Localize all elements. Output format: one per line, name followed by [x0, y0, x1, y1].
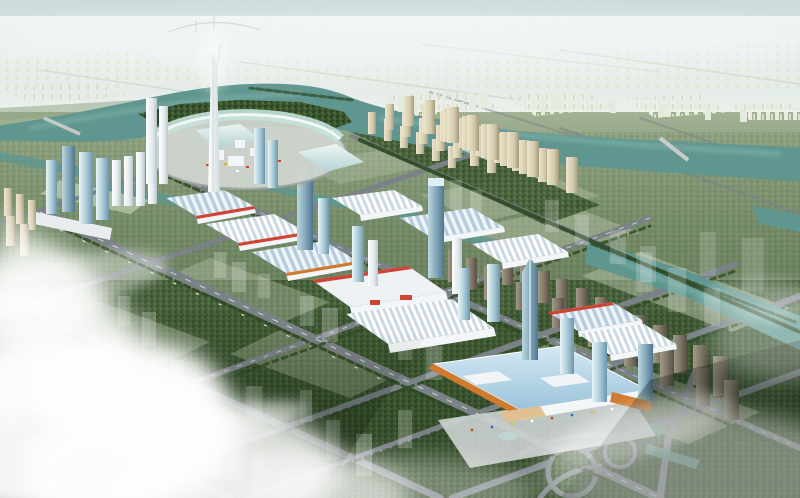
- rendering-canvas: [0, 0, 800, 498]
- aerial-render-stage: Aerial perspective rendering of a planne…: [0, 0, 800, 498]
- city-masterplan-rendering: Aerial perspective rendering of a planne…: [0, 0, 800, 498]
